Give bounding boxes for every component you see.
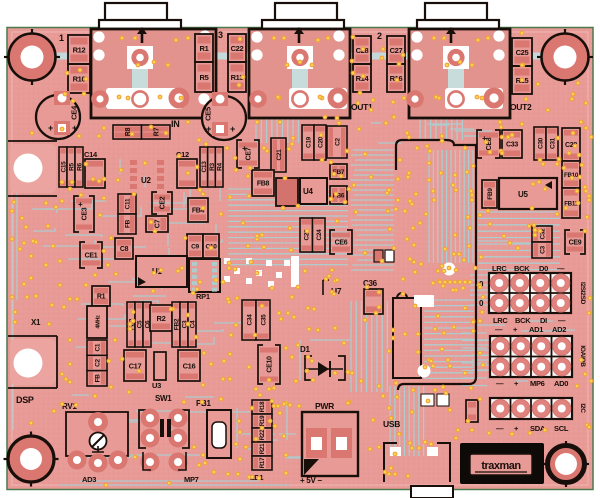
svg-text:C2: C2 [334, 137, 341, 145]
svg-text:DSP: DSP [16, 395, 34, 405]
svg-text:MP7: MP7 [184, 475, 199, 484]
svg-text:4MHz: 4MHz [96, 315, 102, 329]
svg-text:R18: R18 [259, 401, 266, 412]
svg-text:CE7: CE7 [246, 147, 253, 160]
svg-text:FB8: FB8 [257, 181, 270, 188]
svg-text:—: — [495, 325, 503, 334]
svg-text:R12: R12 [73, 46, 86, 55]
svg-text:D1: D1 [300, 345, 310, 354]
svg-text:R7: R7 [153, 127, 160, 136]
svg-text:3: 3 [218, 30, 223, 40]
svg-text:AD3: AD3 [82, 475, 96, 484]
svg-text:C20: C20 [317, 136, 324, 148]
svg-text:PWR: PWR [315, 401, 334, 411]
svg-text:AD0: AD0 [554, 379, 568, 388]
svg-text:CE6: CE6 [335, 240, 348, 247]
svg-text:R21: R21 [259, 443, 266, 454]
svg-text:CE3: CE3 [82, 207, 89, 220]
svg-text:CE1: CE1 [85, 253, 98, 260]
svg-text:C9: C9 [191, 243, 199, 250]
svg-text:SW1: SW1 [155, 394, 172, 403]
svg-text:C1: C1 [94, 343, 101, 351]
svg-text:C21: C21 [276, 149, 283, 161]
svg-text:CE5: CE5 [204, 107, 213, 121]
svg-text:C34: C34 [246, 314, 253, 326]
svg-text:+ 5V −: + 5V − [300, 476, 322, 485]
svg-text:R1: R1 [97, 294, 106, 301]
svg-text:OUT2: OUT2 [510, 102, 532, 112]
svg-text:IN: IN [171, 119, 179, 129]
svg-text:R22: R22 [259, 429, 266, 440]
svg-text:AD1: AD1 [529, 325, 543, 334]
svg-text:—: — [496, 424, 504, 433]
svg-text:2: 2 [377, 31, 382, 41]
svg-text:R5: R5 [200, 73, 209, 82]
svg-text:C8: C8 [120, 246, 129, 253]
svg-text:U5: U5 [518, 190, 528, 199]
svg-text:1: 1 [59, 33, 64, 43]
svg-text:+: + [206, 124, 211, 134]
svg-text:USB: USB [383, 419, 400, 429]
svg-text:D0: D0 [539, 264, 548, 273]
svg-text:R2: R2 [157, 314, 166, 323]
svg-text:R1: R1 [200, 44, 209, 53]
svg-text:I2C: I2C [579, 403, 586, 413]
svg-text:R17: R17 [259, 457, 266, 468]
svg-text:CE9: CE9 [569, 240, 582, 247]
svg-text:+: + [230, 124, 235, 134]
svg-text:+: + [48, 123, 53, 133]
svg-text:CE2: CE2 [160, 196, 167, 209]
svg-text:U4: U4 [303, 187, 313, 196]
svg-text:C31: C31 [549, 137, 556, 149]
svg-text:—: — [496, 379, 504, 388]
svg-text:BCK: BCK [514, 264, 530, 273]
svg-text:C14: C14 [84, 150, 98, 159]
svg-text:C35: C35 [260, 314, 267, 326]
svg-text:+: + [78, 200, 83, 209]
svg-text:FB: FB [94, 374, 101, 383]
svg-text:C3: C3 [539, 245, 546, 253]
svg-text:R6: R6 [76, 162, 83, 170]
svg-text:+: + [242, 144, 247, 153]
svg-text:LRC: LRC [492, 264, 507, 273]
svg-text:CE4: CE4 [70, 105, 79, 120]
svg-text:C30: C30 [537, 137, 544, 149]
svg-text:C16: C16 [183, 361, 196, 370]
svg-text:C2: C2 [94, 358, 101, 366]
svg-text:FB: FB [124, 219, 131, 228]
svg-text:LRC: LRC [493, 316, 508, 325]
svg-text:+: + [72, 123, 77, 133]
svg-text:AD2: AD2 [552, 325, 566, 334]
svg-text:U3: U3 [152, 381, 161, 390]
svg-text:FB9: FB9 [487, 188, 494, 200]
svg-text:C11: C11 [124, 198, 131, 209]
svg-text:IOAIOB: IOAIOB [579, 345, 586, 367]
svg-text:SCL: SCL [554, 424, 569, 433]
svg-text:DI: DI [540, 316, 547, 325]
svg-text:C7: C7 [155, 219, 162, 228]
svg-text:C33: C33 [506, 142, 518, 149]
svg-text:CE10: CE10 [267, 356, 274, 373]
svg-text:C27: C27 [390, 46, 403, 55]
svg-text:traxman: traxman [481, 460, 521, 472]
svg-text:R4: R4 [217, 162, 224, 170]
svg-text:RP1: RP1 [196, 292, 210, 301]
svg-text:—: — [557, 264, 565, 273]
svg-text:BCK: BCK [515, 316, 531, 325]
svg-text:C22: C22 [231, 44, 244, 53]
svg-text:C24: C24 [316, 229, 323, 241]
svg-text:C19: C19 [305, 136, 312, 148]
svg-text:C25: C25 [516, 48, 529, 57]
svg-text:MP6: MP6 [530, 379, 545, 388]
svg-text:X1: X1 [31, 318, 41, 327]
svg-text:—: — [558, 316, 566, 325]
svg-text:U2: U2 [141, 176, 151, 185]
svg-text:R19: R19 [259, 415, 266, 426]
svg-text:I2SI2SD: I2SI2SD [579, 282, 586, 305]
